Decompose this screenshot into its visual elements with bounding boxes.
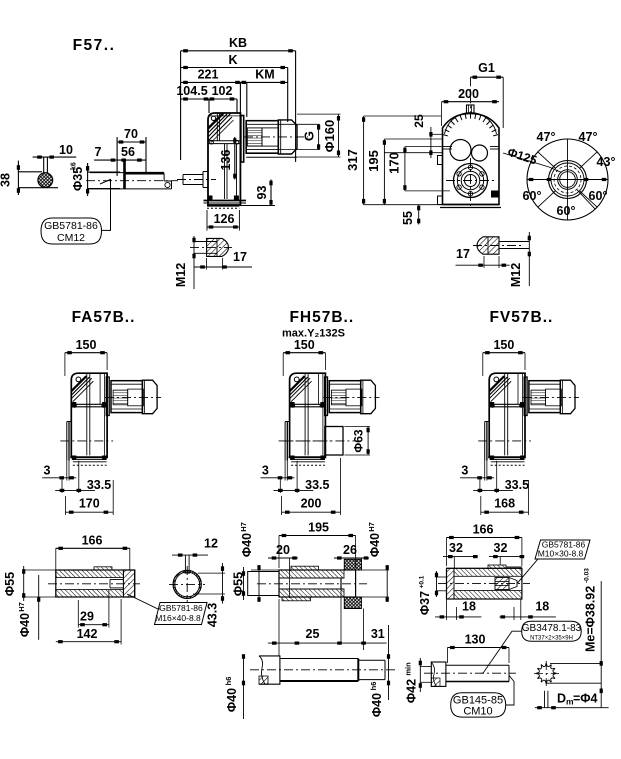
svg-text:126: 126	[214, 212, 235, 226]
svg-text:K: K	[228, 53, 237, 67]
svg-text:CM12: CM12	[57, 232, 85, 244]
svg-text:NT37×2×35×9H: NT37×2×35×9H	[530, 636, 573, 642]
svg-text:Φ160: Φ160	[322, 120, 337, 152]
svg-text:130: 130	[465, 632, 486, 646]
svg-text:=Φ4: =Φ4	[573, 692, 598, 706]
svg-text:10: 10	[59, 143, 73, 157]
svg-text:M12: M12	[174, 263, 188, 287]
svg-text:60°: 60°	[523, 189, 542, 203]
svg-text:F57..: F57..	[73, 37, 116, 54]
svg-text:+0.1: +0.1	[419, 575, 426, 588]
svg-text:KB: KB	[229, 36, 247, 50]
svg-text:Φ40: Φ40	[368, 533, 382, 557]
svg-text:29: 29	[80, 610, 94, 624]
svg-text:H7: H7	[367, 522, 376, 532]
svg-text:20: 20	[276, 543, 290, 557]
svg-text:17: 17	[233, 250, 247, 264]
svg-text:150: 150	[76, 338, 97, 352]
svg-text:Φ40: Φ40	[225, 688, 239, 712]
svg-text:M16×40-8.8: M16×40-8.8	[155, 613, 201, 623]
svg-text:33.5: 33.5	[505, 478, 529, 492]
svg-text:GB3478.1-83: GB3478.1-83	[522, 623, 582, 634]
svg-text:25: 25	[412, 114, 426, 128]
svg-text:Φ63: Φ63	[351, 429, 365, 453]
svg-text:32: 32	[494, 541, 508, 555]
svg-text:136: 136	[219, 150, 233, 171]
svg-text:3: 3	[461, 464, 468, 478]
svg-text:31: 31	[371, 627, 385, 641]
svg-text:3: 3	[262, 464, 269, 478]
svg-text:200: 200	[458, 87, 479, 101]
svg-text:M10×30-8.8: M10×30-8.8	[538, 549, 584, 559]
svg-text:150: 150	[493, 338, 514, 352]
svg-text:18: 18	[462, 600, 476, 614]
svg-text:Me=Φ38.92: Me=Φ38.92	[584, 586, 598, 652]
svg-text:43°: 43°	[597, 155, 616, 169]
svg-text:h6: h6	[369, 682, 378, 691]
svg-text:47°: 47°	[537, 130, 556, 144]
svg-text:60°: 60°	[589, 189, 608, 203]
svg-text:GB5781-86: GB5781-86	[159, 603, 203, 613]
svg-text:18: 18	[535, 600, 549, 614]
svg-text:32: 32	[449, 541, 463, 555]
svg-text:70: 70	[124, 127, 138, 141]
svg-text:Φ40: Φ40	[370, 693, 384, 717]
svg-text:GB5781-86: GB5781-86	[44, 220, 98, 232]
svg-text:166: 166	[82, 534, 103, 548]
svg-text:-0.03: -0.03	[584, 568, 591, 583]
svg-text:M12: M12	[509, 263, 523, 287]
svg-text:Φ40: Φ40	[240, 533, 254, 557]
svg-text:Φ42: Φ42	[405, 679, 419, 703]
svg-text:7: 7	[95, 145, 102, 159]
svg-text:FV57B..: FV57B..	[489, 309, 553, 326]
svg-text:55: 55	[401, 211, 415, 225]
svg-text:KM: KM	[255, 68, 274, 82]
svg-text:170: 170	[387, 152, 402, 174]
svg-text:33.5: 33.5	[87, 478, 111, 492]
svg-text:25: 25	[306, 627, 320, 641]
svg-text:min: min	[404, 662, 413, 676]
svg-text:Φ55: Φ55	[3, 572, 17, 596]
svg-text:60°: 60°	[557, 204, 576, 218]
svg-text:195: 195	[308, 521, 329, 535]
svg-text:FA57B..: FA57B..	[72, 309, 136, 326]
svg-text:3: 3	[44, 464, 51, 478]
svg-text:170: 170	[79, 497, 100, 511]
svg-text:h6: h6	[224, 677, 233, 686]
svg-text:Φ40: Φ40	[18, 613, 32, 637]
svg-text:FH57B..: FH57B..	[289, 309, 354, 326]
svg-text:168: 168	[494, 497, 515, 511]
svg-text:200: 200	[301, 497, 322, 511]
svg-text:k6: k6	[71, 162, 78, 170]
svg-text:195: 195	[366, 150, 381, 172]
svg-text:47°: 47°	[579, 130, 598, 144]
svg-text:102: 102	[212, 84, 233, 98]
svg-text:33.5: 33.5	[305, 478, 329, 492]
svg-text:H7: H7	[239, 522, 248, 532]
svg-text:26: 26	[343, 543, 357, 557]
svg-text:G1: G1	[478, 61, 495, 75]
svg-text:56: 56	[121, 145, 135, 159]
svg-text:38: 38	[0, 173, 13, 187]
svg-text:150: 150	[294, 338, 315, 352]
svg-text:317: 317	[345, 149, 360, 171]
svg-text:H7: H7	[17, 602, 26, 612]
svg-text:D: D	[557, 692, 566, 706]
svg-text:43.3: 43.3	[206, 603, 220, 627]
svg-text:166: 166	[473, 523, 494, 537]
svg-text:221: 221	[198, 68, 219, 82]
svg-text:G: G	[302, 131, 317, 141]
svg-text:17: 17	[456, 247, 470, 261]
svg-text:Φ37: Φ37	[418, 591, 432, 615]
svg-text:12: 12	[204, 537, 218, 551]
svg-text:Φ55: Φ55	[232, 572, 246, 596]
svg-text:93: 93	[255, 186, 269, 200]
svg-text:CM10: CM10	[463, 706, 492, 718]
svg-text:142: 142	[77, 627, 98, 641]
